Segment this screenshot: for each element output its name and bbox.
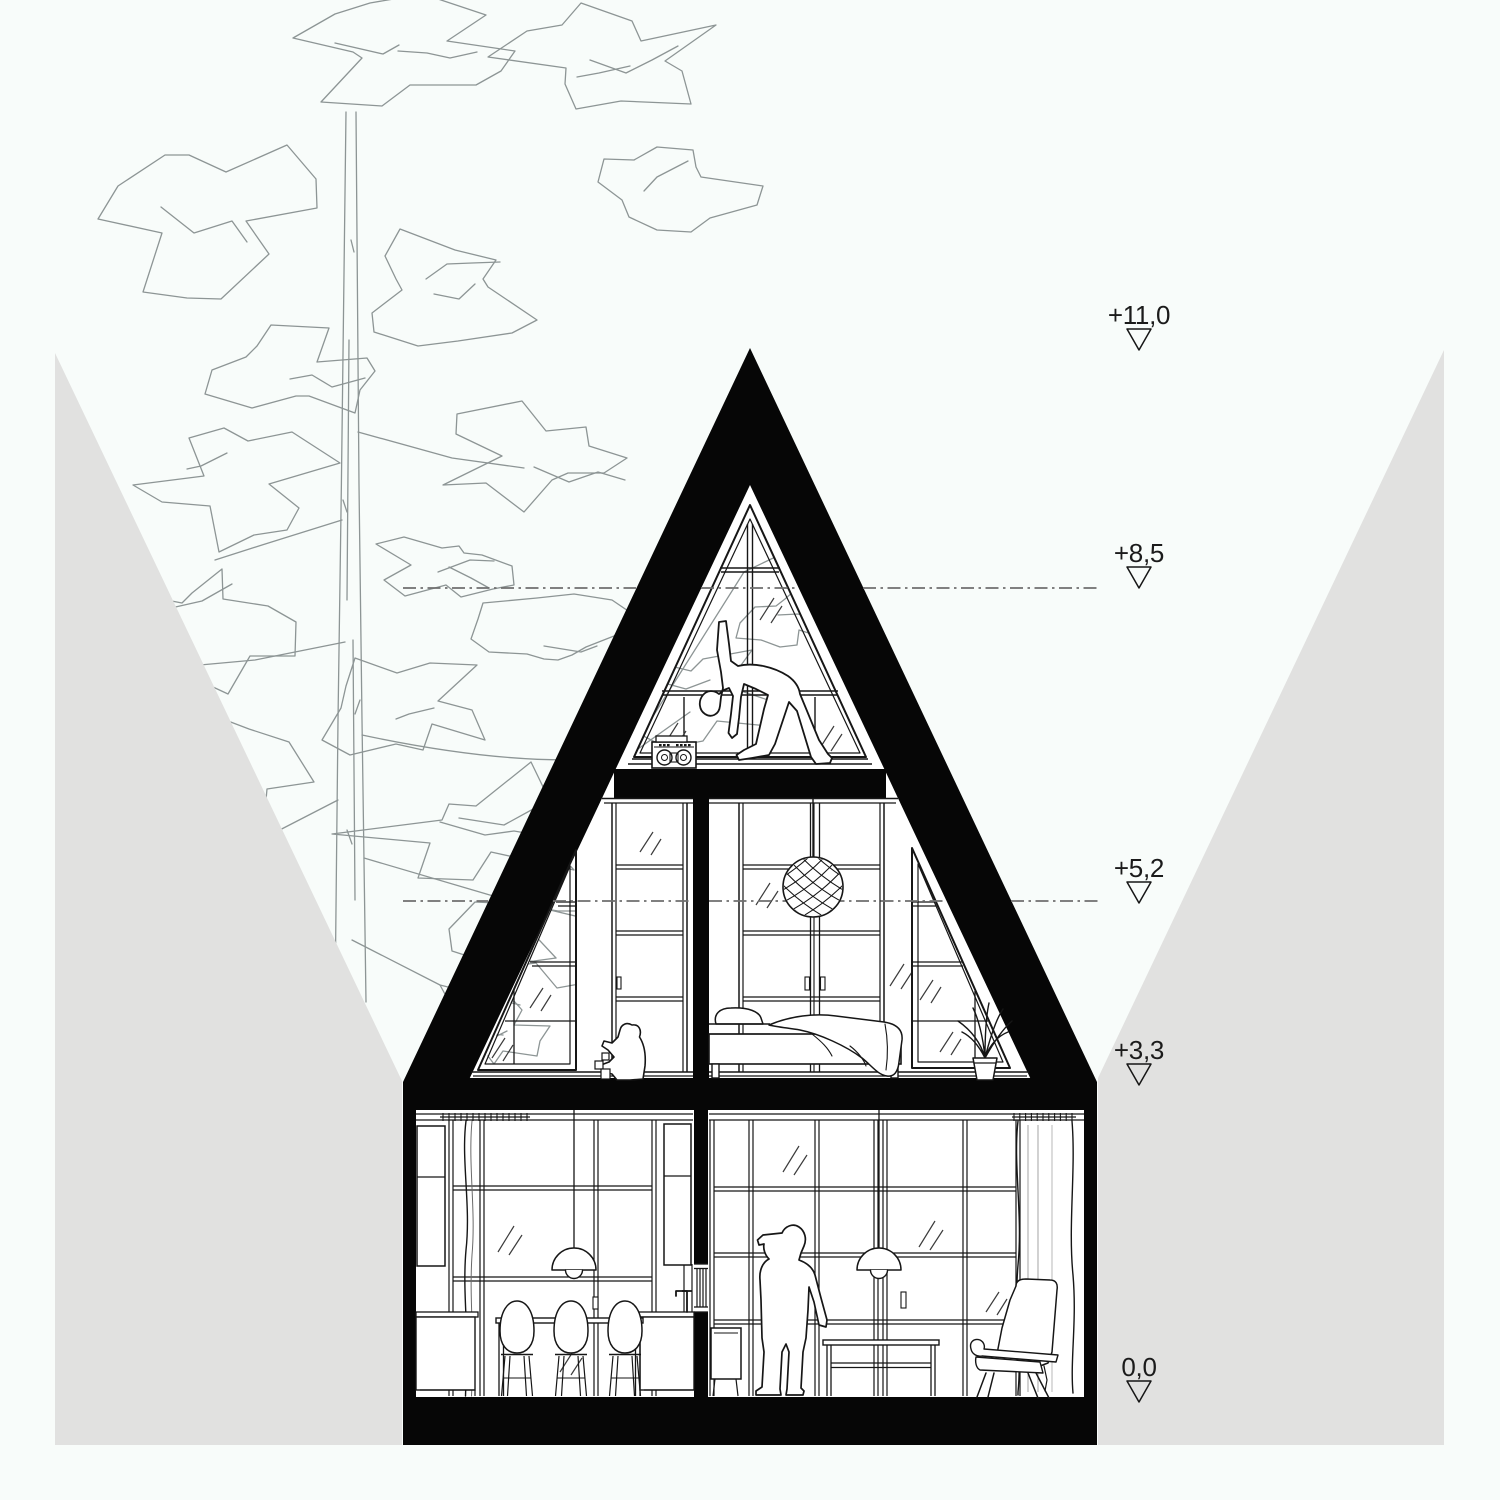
svg-text:+3,3: +3,3 [1114,1035,1164,1065]
svg-text:+5,2: +5,2 [1114,853,1164,883]
svg-text:+8,5: +8,5 [1114,538,1164,568]
svg-text:0,0: 0,0 [1121,1352,1156,1382]
svg-text:+11,0: +11,0 [1108,300,1170,330]
